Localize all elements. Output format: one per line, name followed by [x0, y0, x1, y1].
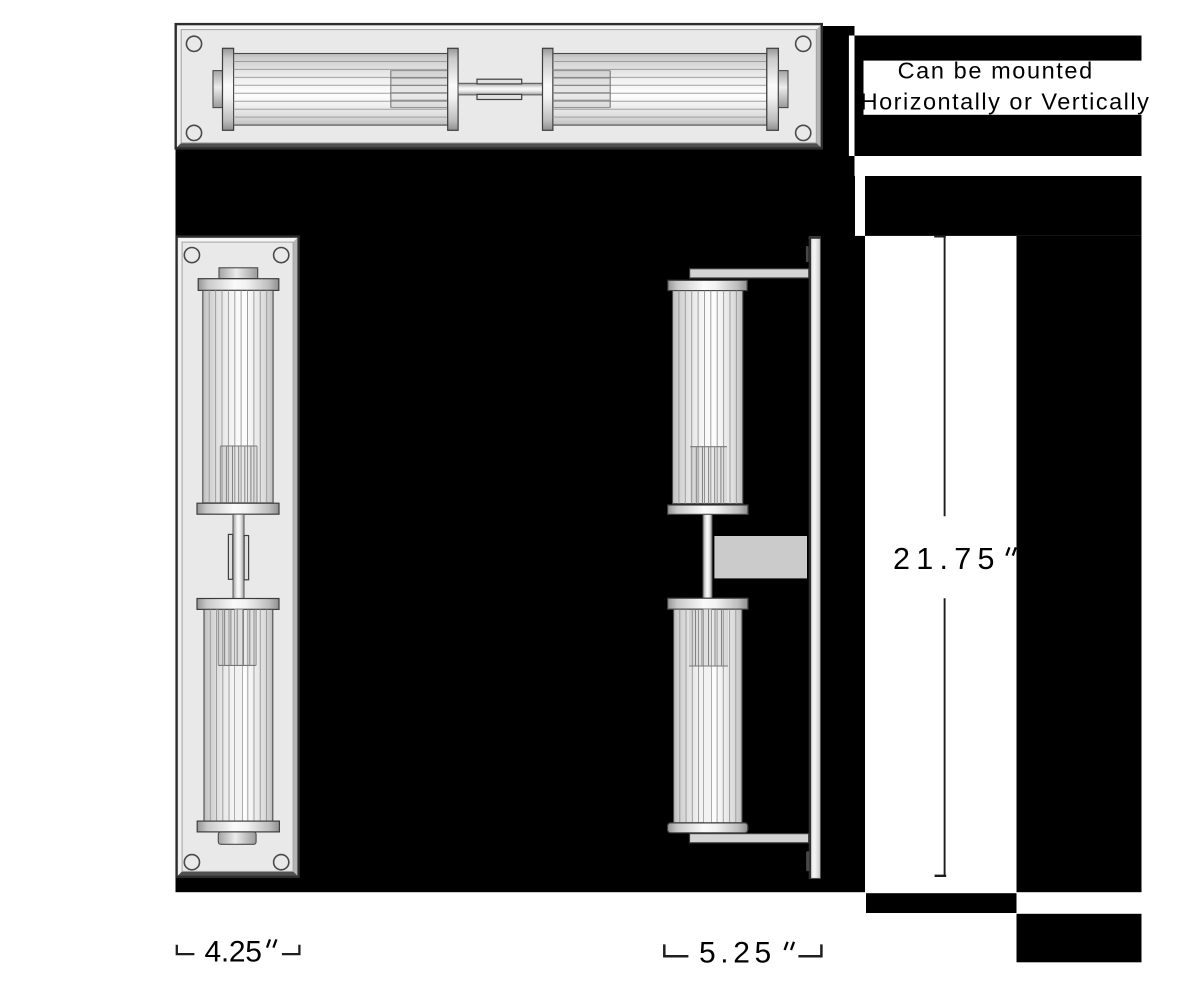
svg-text:4.25: 4.25	[205, 935, 262, 968]
svg-text:5.25: 5.25	[699, 936, 776, 969]
svg-text:Can be mounted: Can be mounted	[898, 58, 1094, 84]
svg-text:Horizontally or Vertically: Horizontally or Vertically	[861, 88, 1151, 114]
svg-text:21.75: 21.75	[893, 542, 1001, 576]
